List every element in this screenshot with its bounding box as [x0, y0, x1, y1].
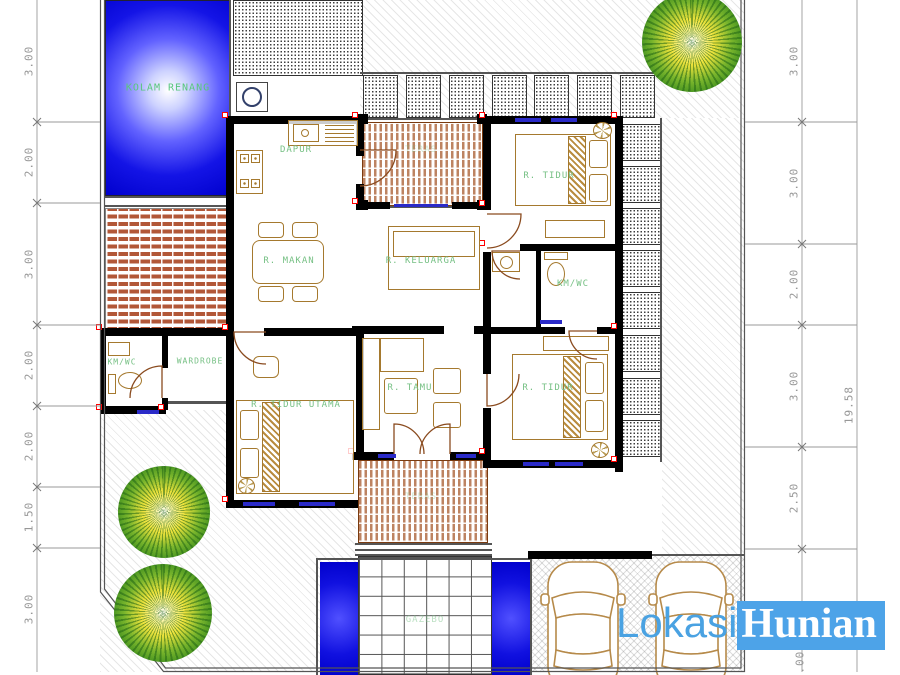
watermark: LokasiHunian — [616, 600, 885, 648]
tree-icon — [114, 564, 212, 662]
tree-icon — [118, 466, 210, 558]
floor-plan: KOLAM RENANG DAPUR R. MAKAN R. KELUARGA … — [0, 0, 900, 675]
watermark-hunian: Hunian — [737, 601, 884, 650]
watermark-lokasi: Lokasi — [616, 600, 737, 646]
